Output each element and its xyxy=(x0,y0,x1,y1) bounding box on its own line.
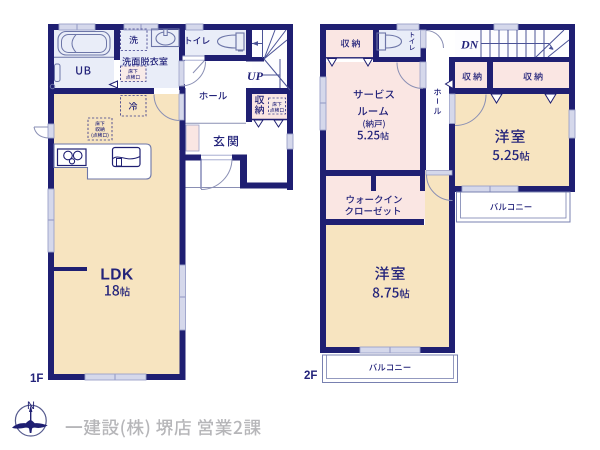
svg-text:1F: 1F xyxy=(30,373,43,385)
svg-text:DN: DN xyxy=(460,38,480,52)
svg-text:LDK: LDK xyxy=(100,267,134,284)
svg-text:2F: 2F xyxy=(304,370,317,382)
svg-text:UP: UP xyxy=(247,69,264,83)
